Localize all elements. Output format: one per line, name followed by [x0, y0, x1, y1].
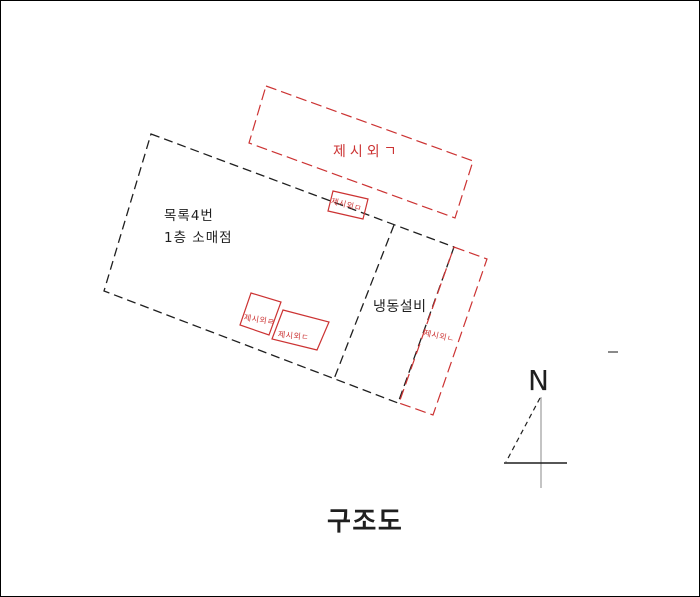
north-arrow-diagonal-line: [506, 398, 540, 462]
north-label: N: [528, 364, 549, 397]
annex-right-strip-outline: [399, 247, 487, 415]
structure-drawing-canvas: 제시외ㄱ 제시외ㅁ 목록4번 1층 소매점 제시외ㄹ 제시외ㄷ 냉동설비 제시외…: [1, 1, 699, 596]
main-building-outline: [104, 134, 454, 403]
annex-small-d-label: 제시외ㄷ: [277, 329, 309, 342]
annex-right-strip-label: 제시외ㄴ: [423, 328, 456, 344]
main-building-label-line1: 목록4번: [164, 208, 214, 224]
annex-small-r-label: 제시외ㄹ: [243, 312, 276, 327]
page-title: 구조도: [327, 507, 403, 537]
annex-top-label: 제시외ㄱ: [333, 144, 401, 160]
annex-small-m-label: 제시외ㅁ: [330, 196, 363, 213]
structure-drawing-page: 제시외ㄱ 제시외ㅁ 목록4번 1층 소매점 제시외ㄹ 제시외ㄷ 냉동설비 제시외…: [0, 0, 700, 597]
main-building-label-line2: 1층 소매점: [164, 230, 233, 246]
refrigeration-room-label: 냉동설비: [373, 299, 427, 315]
